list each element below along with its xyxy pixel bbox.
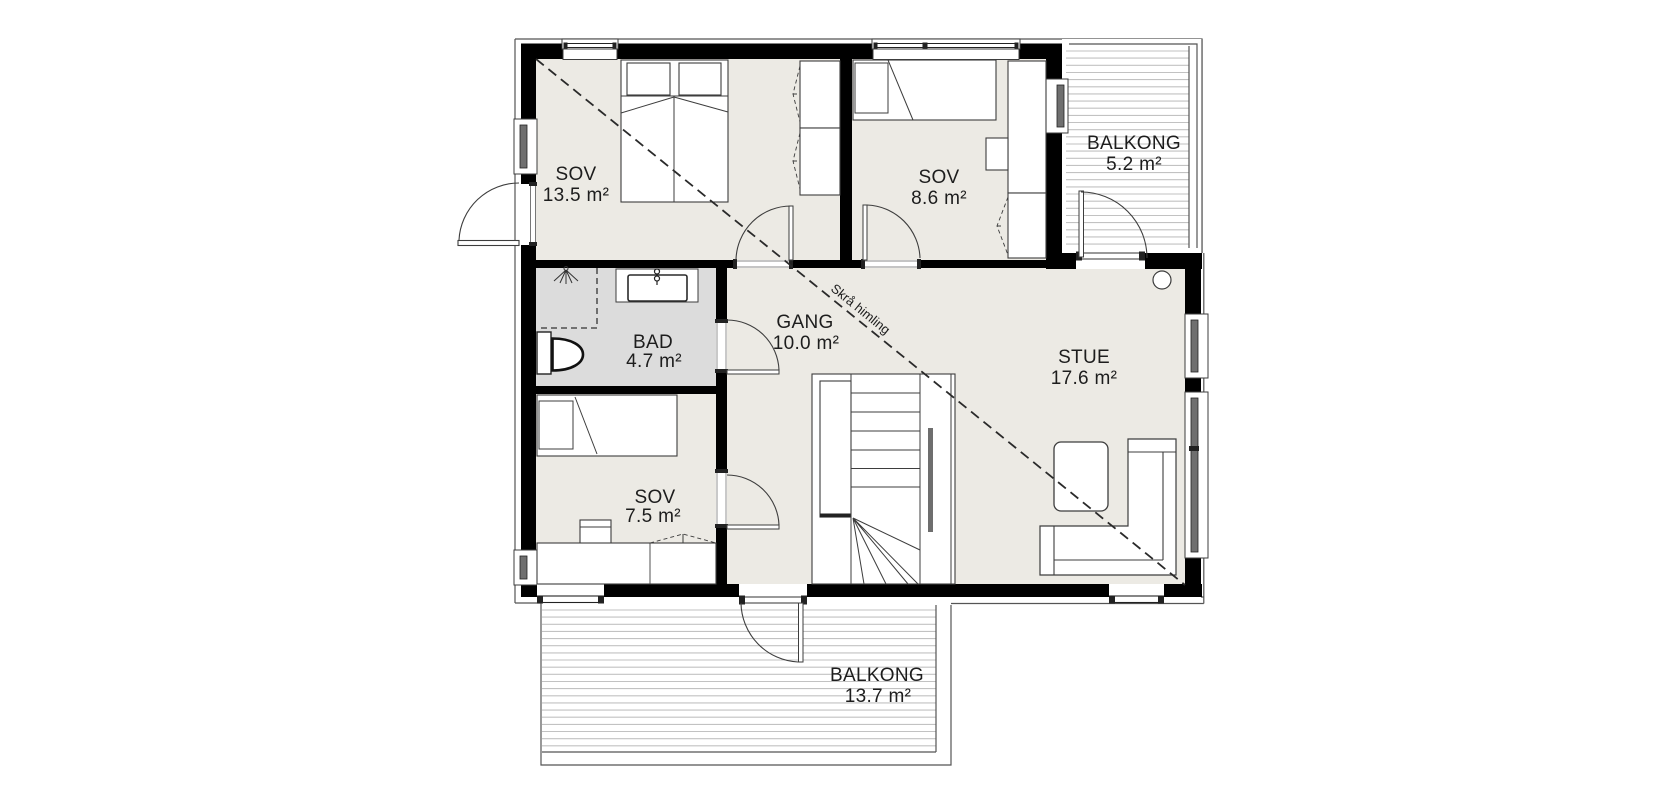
svg-text:7.5 m²: 7.5 m² [625, 506, 681, 527]
svg-text:SOV: SOV [918, 167, 959, 188]
svg-text:17.6 m²: 17.6 m² [1051, 368, 1118, 389]
svg-text:10.0 m²: 10.0 m² [773, 333, 840, 354]
svg-text:13.7 m²: 13.7 m² [845, 686, 912, 707]
svg-text:STUE: STUE [1058, 347, 1110, 368]
svg-text:SOV: SOV [634, 487, 675, 508]
svg-text:13.5 m²: 13.5 m² [543, 185, 610, 206]
svg-text:BAD: BAD [633, 332, 673, 353]
svg-text:5.2 m²: 5.2 m² [1106, 154, 1162, 175]
svg-text:8.6 m²: 8.6 m² [911, 188, 967, 209]
svg-text:4.7 m²: 4.7 m² [626, 351, 682, 372]
svg-text:BALKONG: BALKONG [1087, 133, 1181, 154]
svg-text:SOV: SOV [555, 164, 596, 185]
svg-text:BALKONG: BALKONG [830, 665, 924, 686]
svg-text:GANG: GANG [776, 312, 833, 333]
